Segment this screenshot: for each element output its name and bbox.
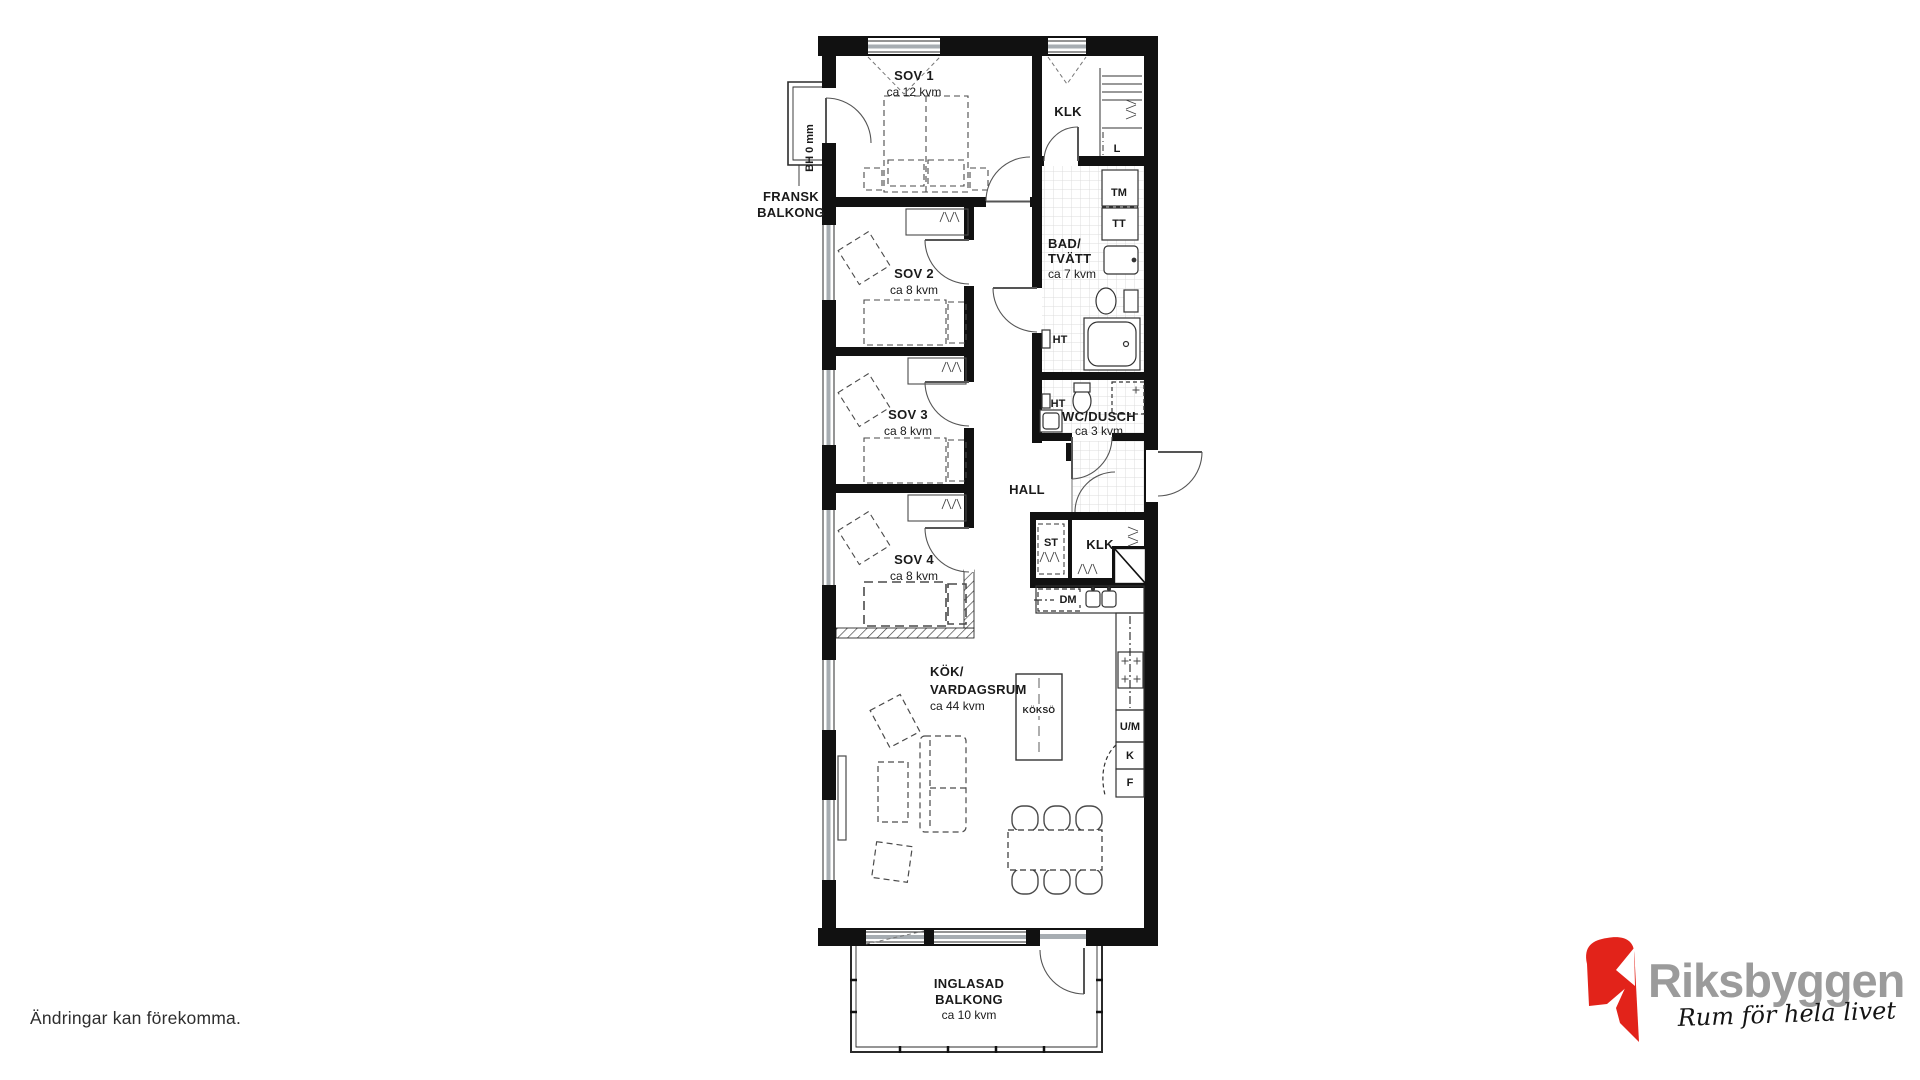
double-bed <box>864 96 988 192</box>
room-area-bad: ca 7 kvm <box>1048 267 1096 281</box>
room-area-sov3: ca 8 kvm <box>884 424 932 438</box>
page: SOV 1 ca 12 kvm KLK L TM TT BAD/ TVÄTT c… <box>0 0 1920 1080</box>
single-bed <box>864 438 946 483</box>
room-label-balkong-1: INGLASAD <box>934 976 1004 991</box>
room-label-st: ST <box>1044 537 1058 549</box>
room-label-klk-top: KLK <box>1054 104 1082 119</box>
room-area-sov2: ca 8 kvm <box>890 283 938 297</box>
armchair <box>838 232 890 285</box>
disclaimer-text: Ändringar kan förekomma. <box>30 1008 241 1029</box>
room-label-sov3: SOV 3 <box>888 407 928 422</box>
fixture-label-f: F <box>1127 777 1134 789</box>
label-sill-height: BH 0 mm <box>804 124 816 172</box>
room-label-kok-1: KÖK/ <box>930 664 964 679</box>
armchair <box>872 842 913 883</box>
room-area-sov4: ca 8 kvm <box>890 569 938 583</box>
room-area-sov1: ca 12 kvm <box>887 85 942 99</box>
room-label-klk-mid: KLK <box>1086 537 1114 552</box>
coffee-table <box>878 762 908 822</box>
armchair <box>838 374 890 427</box>
sink-bowl <box>1102 591 1116 607</box>
room-area-kok: ca 44 kvm <box>930 699 985 713</box>
tv-bench <box>838 756 846 840</box>
label-fransk-1: FRANSK <box>763 189 819 204</box>
room-label-kok-2: VARDAGSRUM <box>930 682 1027 697</box>
room-label-bad-1: BAD/ <box>1048 236 1081 251</box>
dining-table <box>1008 830 1102 870</box>
label-koksso: KÖKSÖ <box>1023 705 1056 715</box>
fixture-label-um: U/M <box>1120 721 1140 733</box>
fixture-label-k: K <box>1126 750 1134 762</box>
room-label-sov4: SOV 4 <box>894 552 934 567</box>
linen-closet <box>1100 68 1142 156</box>
armchair <box>838 512 890 565</box>
room-area-wc: ca 3 kvm <box>1075 424 1123 438</box>
fixture-label-ht-bad: HT <box>1053 334 1068 346</box>
label-fransk-2: BALKONG <box>757 205 825 220</box>
room-label-balkong-2: BALKONG <box>935 992 1003 1007</box>
fixture-label-tt: TT <box>1112 218 1126 230</box>
towel-dryer <box>1042 330 1050 348</box>
room-label-hall: HALL <box>1009 482 1045 497</box>
room-area-balkong: ca 10 kvm <box>942 1008 997 1022</box>
fixture-label-linen: L <box>1114 143 1121 155</box>
sofa <box>920 736 966 832</box>
fixture-label-tm: TM <box>1111 187 1127 199</box>
fixture-label-dm: DM <box>1059 594 1076 606</box>
room-label-sov2: SOV 2 <box>894 266 934 281</box>
toilet <box>1096 288 1116 314</box>
single-bed <box>864 300 946 345</box>
room-label-wc: WC/DUSCH <box>1062 409 1136 424</box>
floor-plan: SOV 1 ca 12 kvm KLK L TM TT BAD/ TVÄTT c… <box>0 0 1920 1080</box>
riksbyggen-logo: Riksbyggen Rum för hela livet <box>1578 920 1908 1070</box>
towel-dryer <box>1042 394 1050 408</box>
kitchen <box>1016 586 1144 797</box>
room-label-bad-2: TVÄTT <box>1048 251 1091 266</box>
armchair <box>870 694 920 747</box>
sink-bowl <box>1086 591 1100 607</box>
riksbyggen-ribbon-icon <box>1586 937 1639 1042</box>
room-label-sov1: SOV 1 <box>894 68 934 83</box>
single-bed <box>864 582 946 626</box>
